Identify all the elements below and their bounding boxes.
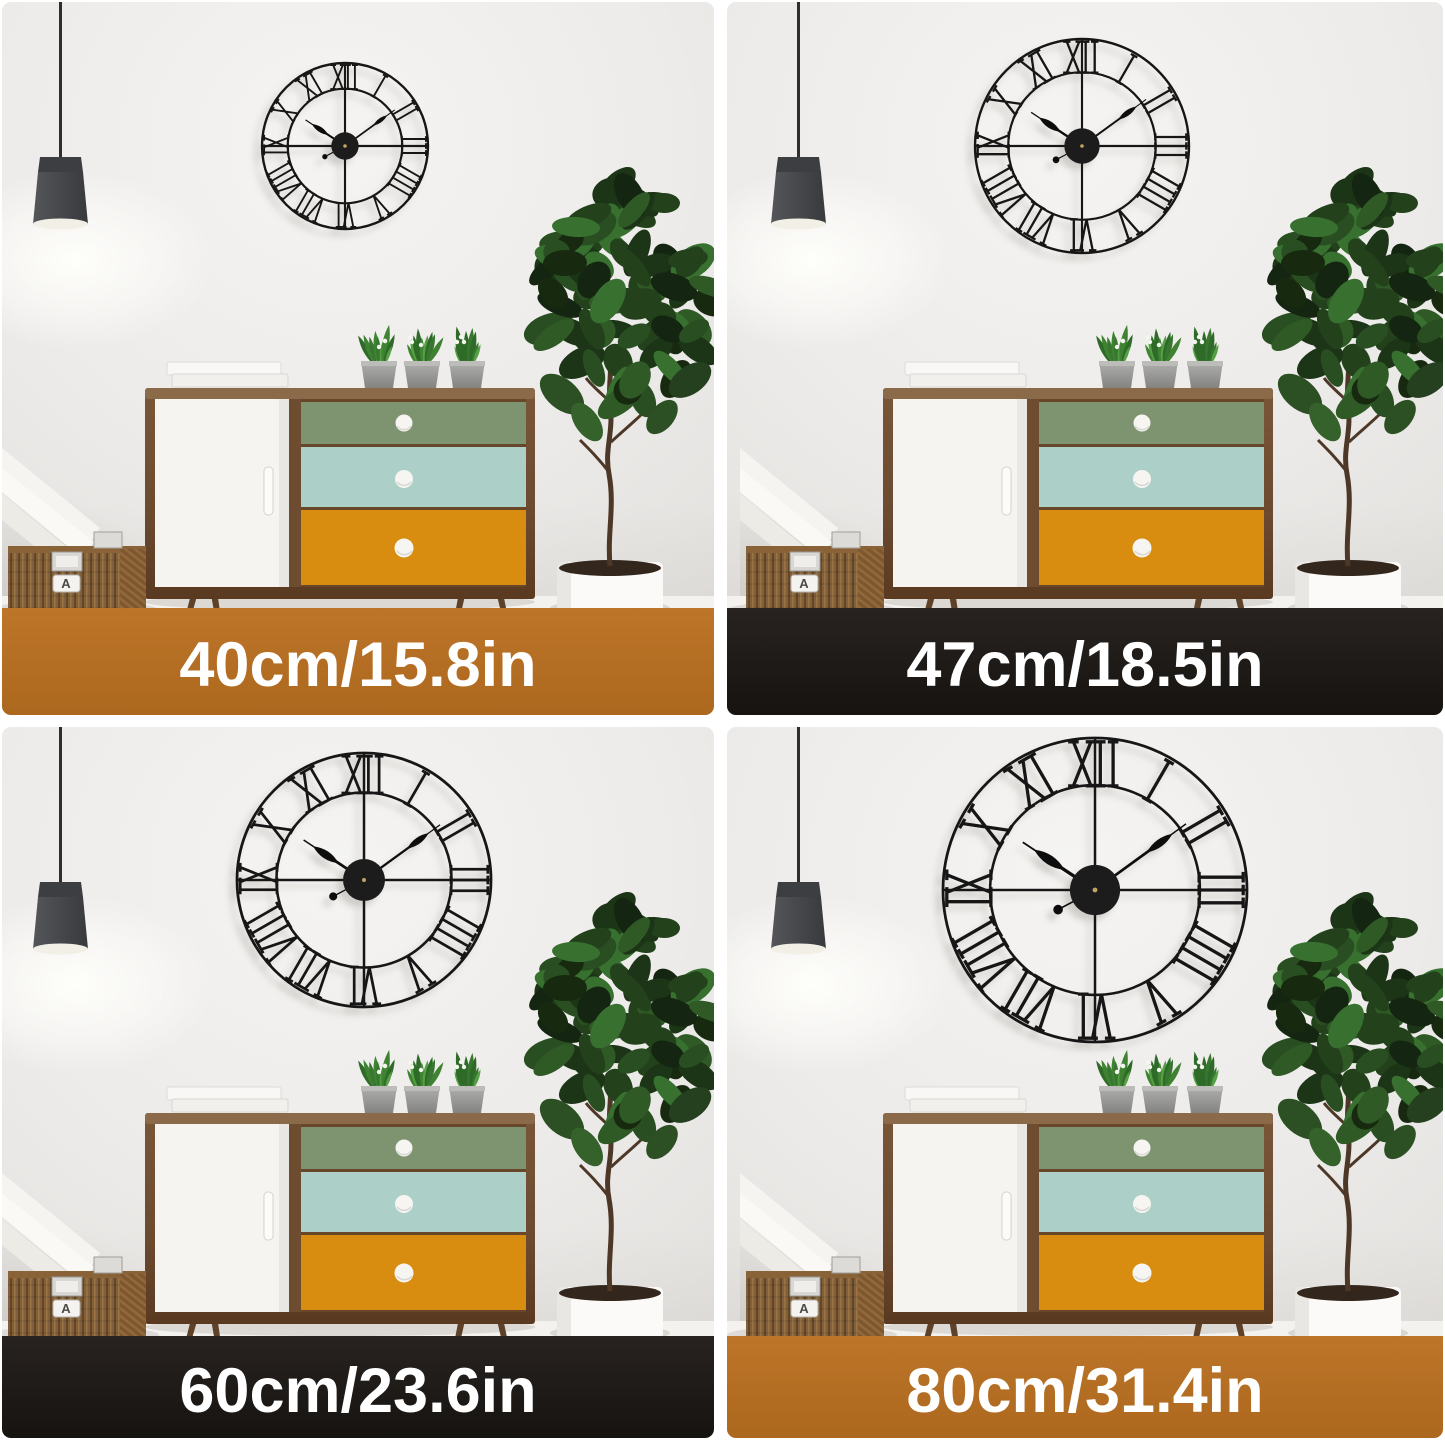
svg-text:40cm/15.8in: 40cm/15.8in (179, 630, 536, 700)
svg-text:60cm/23.6in: 60cm/23.6in (179, 1356, 536, 1426)
svg-text:47cm/18.5in: 47cm/18.5in (906, 630, 1263, 700)
svg-text:80cm/31.4in: 80cm/31.4in (906, 1356, 1263, 1426)
